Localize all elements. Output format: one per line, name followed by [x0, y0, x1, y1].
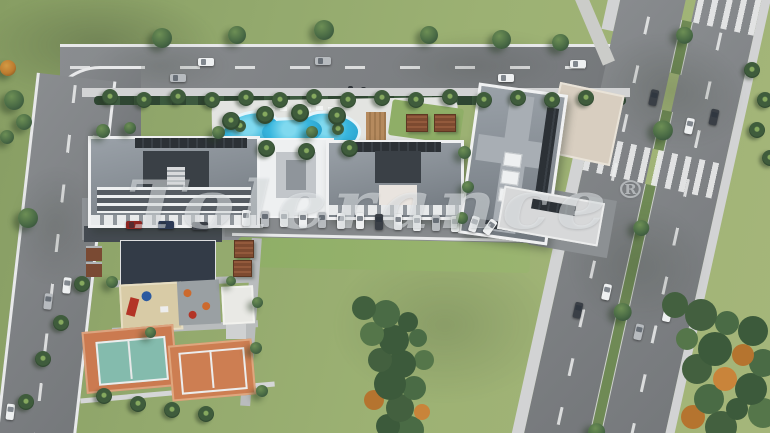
pergola	[434, 114, 456, 132]
car	[242, 210, 250, 226]
palm-tree	[238, 90, 254, 106]
shrub	[212, 126, 225, 139]
palm-tree	[442, 89, 458, 105]
tree	[492, 30, 511, 49]
palm-tree	[408, 92, 424, 108]
palm-tree	[374, 90, 390, 106]
roof-stairs	[167, 167, 185, 187]
shrub	[458, 146, 471, 159]
shrub	[145, 327, 156, 338]
palm-tree	[53, 315, 69, 331]
palm-tree	[170, 89, 186, 105]
solar-panels	[135, 138, 247, 148]
car	[356, 213, 364, 229]
balcony-fins	[97, 187, 251, 213]
shrub	[124, 122, 136, 134]
car	[315, 57, 331, 65]
palm-tree	[306, 89, 322, 105]
lane-marking	[32, 85, 76, 433]
car	[570, 60, 586, 68]
car	[375, 214, 383, 230]
palm-tree	[328, 107, 346, 125]
pergola	[233, 260, 252, 277]
palm-tree	[298, 143, 315, 160]
car	[198, 58, 214, 66]
tree	[16, 114, 32, 130]
tree	[420, 26, 438, 44]
apartment-block-west	[88, 136, 260, 228]
tree	[228, 26, 246, 44]
playground	[119, 279, 221, 328]
car	[318, 212, 326, 228]
play-equipment	[160, 306, 168, 312]
palm-tree	[258, 140, 275, 157]
rubber-surface	[177, 279, 221, 325]
palm-tree	[96, 388, 112, 404]
skylight	[503, 152, 523, 168]
white-pad	[221, 285, 255, 325]
palm-tree	[340, 92, 356, 108]
roof-courtyard	[375, 151, 421, 183]
tennis-court	[81, 324, 178, 394]
car	[337, 213, 345, 229]
shrub	[96, 124, 110, 138]
palm-tree	[341, 140, 358, 157]
car	[43, 293, 53, 310]
shrub	[256, 385, 268, 397]
entry-canopy	[379, 185, 417, 207]
pavilion-core	[286, 160, 306, 190]
garden-shed	[86, 246, 102, 261]
palm-tree	[198, 406, 214, 422]
car	[498, 74, 514, 82]
car	[413, 215, 421, 231]
shrub	[456, 212, 468, 224]
shrub	[226, 276, 236, 286]
shrub	[250, 342, 262, 354]
car	[170, 74, 186, 82]
tree	[18, 208, 38, 228]
car	[62, 277, 72, 294]
tree	[552, 34, 569, 51]
car	[158, 221, 174, 229]
roof-vent	[531, 199, 576, 216]
tree	[314, 20, 334, 40]
palm-tree	[164, 402, 180, 418]
tree-cluster	[352, 296, 376, 320]
palm-tree	[136, 92, 152, 108]
tree-cluster	[662, 292, 688, 318]
pergola	[406, 114, 428, 132]
tree	[0, 130, 14, 144]
shrub	[462, 181, 474, 193]
palm-tree	[744, 62, 760, 78]
pergola	[234, 240, 254, 258]
tree	[152, 28, 172, 48]
palm-tree	[510, 90, 526, 106]
palm-tree	[272, 92, 288, 108]
palm-tree	[749, 122, 765, 138]
palm-tree	[222, 112, 240, 130]
palm-tree	[18, 394, 34, 410]
palm-tree	[204, 92, 220, 108]
palm-tree	[757, 92, 770, 108]
car	[299, 212, 307, 228]
palm-tree	[762, 150, 770, 166]
palm-tree	[256, 106, 274, 124]
tree	[4, 90, 24, 110]
car	[394, 214, 402, 230]
palm-tree	[35, 351, 51, 367]
palm-tree	[578, 90, 594, 106]
car	[432, 215, 440, 231]
car	[192, 222, 208, 230]
path-pad	[226, 324, 246, 339]
palm-tree	[476, 92, 492, 108]
car	[280, 211, 288, 227]
sun-lounger	[316, 106, 323, 110]
shrub	[306, 126, 318, 138]
south-facade	[91, 215, 257, 225]
garden-shed	[86, 262, 102, 277]
car	[261, 211, 269, 227]
shrub	[252, 297, 263, 308]
palm-tree	[102, 89, 118, 105]
skylight	[500, 170, 520, 186]
palm-tree	[291, 104, 309, 122]
multi-sport-court	[168, 338, 257, 401]
palm-tree	[74, 276, 90, 292]
lane-marking	[70, 66, 642, 69]
car	[126, 221, 142, 229]
car	[5, 403, 15, 420]
shrub	[106, 276, 118, 288]
lawn-strip	[238, 237, 531, 273]
palm-tree	[130, 396, 146, 412]
palm-tree	[544, 92, 560, 108]
aerial-render-scene: Tolerance®	[0, 0, 770, 433]
flowering-tree	[0, 60, 16, 76]
